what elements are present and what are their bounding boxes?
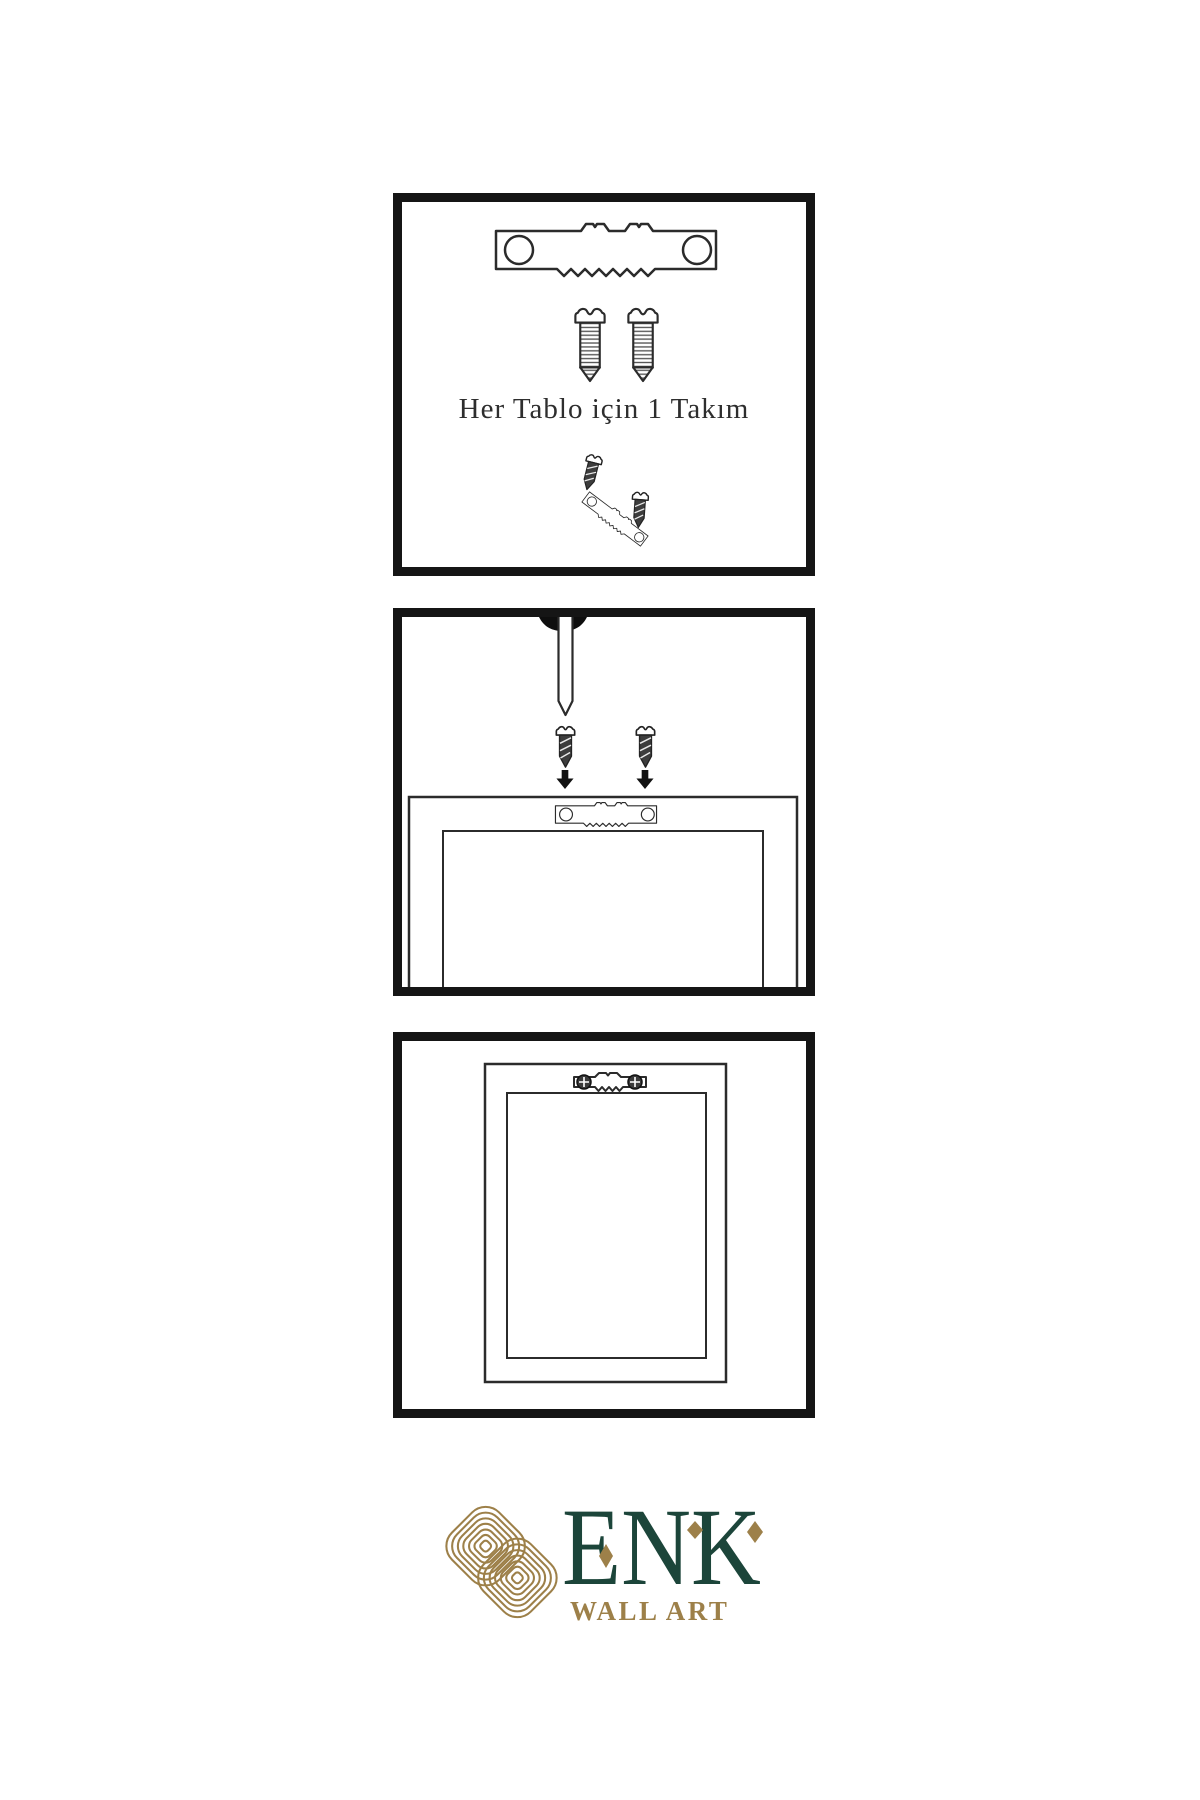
frame-inner-outline (443, 831, 763, 987)
nail-icon (539, 617, 587, 715)
phillips-screw-head-icon (577, 1075, 591, 1089)
sawtooth-hanger-icon (496, 224, 716, 276)
frame-outer-outline (485, 1064, 726, 1382)
small-screw-icon (636, 727, 654, 767)
diamond-accent-icon (747, 1521, 763, 1543)
panel1-illustration (402, 202, 806, 567)
panel2-illustration (402, 617, 806, 987)
panel-mounted-frame (393, 1032, 815, 1418)
panel3-illustration (402, 1041, 806, 1409)
screw-into-hanger-demo (579, 454, 649, 548)
screw-icon (628, 309, 657, 381)
arrow-down-icon (556, 770, 573, 789)
frame-inner-outline (507, 1093, 706, 1358)
arrow-down-icon (636, 770, 653, 789)
small-screw-icon (630, 492, 648, 528)
brand-knot-icon (438, 1496, 565, 1628)
mounted-sawtooth-hanger-icon (574, 1073, 646, 1091)
panel-mounting-steps (393, 608, 815, 996)
small-screw-icon (579, 454, 603, 492)
screw-icon (575, 309, 604, 381)
knot-lobe (438, 1499, 532, 1593)
phillips-screw-head-icon (628, 1075, 642, 1089)
panel-hardware-set: Her Tablo için 1 Takım (393, 193, 815, 576)
brand-name: ENK (562, 1492, 761, 1602)
frame-outer-outline (409, 797, 797, 987)
diamond-accent-icon (687, 1521, 703, 1539)
panel1-caption: Her Tablo için 1 Takım (402, 393, 806, 426)
brand-subtitle: WALL ART (570, 1596, 729, 1627)
diamond-accent-icon (599, 1544, 613, 1568)
small-screw-icon (556, 727, 574, 767)
instruction-poster: Her Tablo için 1 Takım (0, 0, 1200, 1800)
knot-lobe (470, 1531, 564, 1625)
sawtooth-hanger-icon (555, 803, 656, 827)
